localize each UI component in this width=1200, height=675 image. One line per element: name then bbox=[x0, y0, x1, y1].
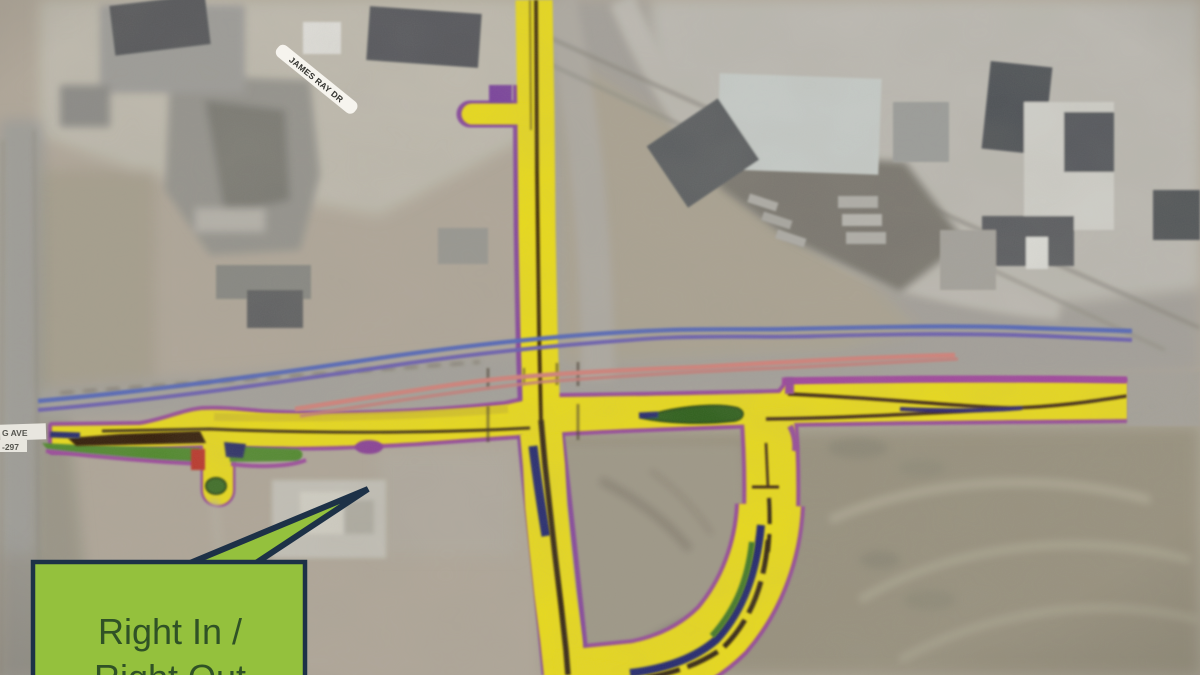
svg-text:Right Out: Right Out bbox=[94, 657, 246, 675]
svg-text:G AVE: G AVE bbox=[2, 428, 28, 438]
svg-text:Right In /: Right In / bbox=[98, 611, 242, 652]
svg-text:-297: -297 bbox=[2, 442, 19, 452]
